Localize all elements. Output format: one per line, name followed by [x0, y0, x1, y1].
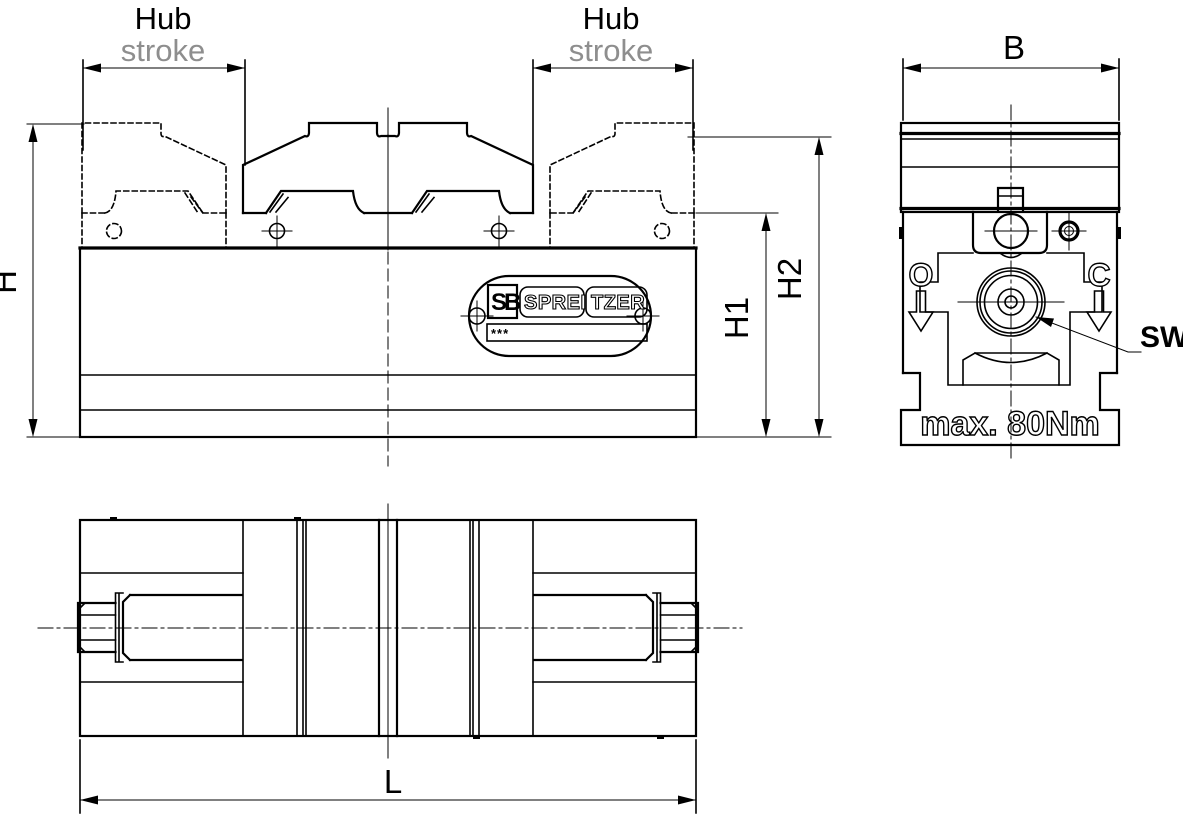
- edge-mark-top-2: [294, 517, 301, 520]
- side-pin-left: [899, 227, 903, 239]
- sw-label: SW: [1140, 321, 1183, 354]
- serial-text: ***: [491, 326, 509, 341]
- technical-drawing-page: Hub stroke Hub stroke: [0, 0, 1183, 817]
- torque-note: max. 80Nm: [920, 405, 1100, 443]
- h-label: H: [0, 270, 23, 294]
- close-label: C: [1087, 257, 1110, 293]
- brand-text-left: SPREI: [524, 292, 587, 314]
- open-label: O: [909, 257, 934, 293]
- vise-drawing-svg: Hub stroke Hub stroke: [0, 0, 1183, 817]
- b-label: B: [1003, 29, 1025, 66]
- brand-text-right: TZER: [591, 292, 645, 314]
- h2-label: H2: [771, 258, 808, 300]
- edge-mark-bottom-2: [657, 736, 664, 739]
- h1-label: H1: [718, 297, 755, 339]
- l-label: L: [384, 763, 402, 800]
- stroke-label-left: stroke: [121, 33, 205, 68]
- hub-label-left: Hub: [135, 1, 192, 36]
- stroke-label-right: stroke: [569, 33, 653, 68]
- edge-mark-top-1: [110, 517, 117, 520]
- edge-mark-bottom-1: [473, 736, 480, 739]
- logo-monogram: SB: [491, 289, 521, 316]
- hub-label-right: Hub: [583, 1, 640, 36]
- side-pin-right: [1117, 227, 1121, 239]
